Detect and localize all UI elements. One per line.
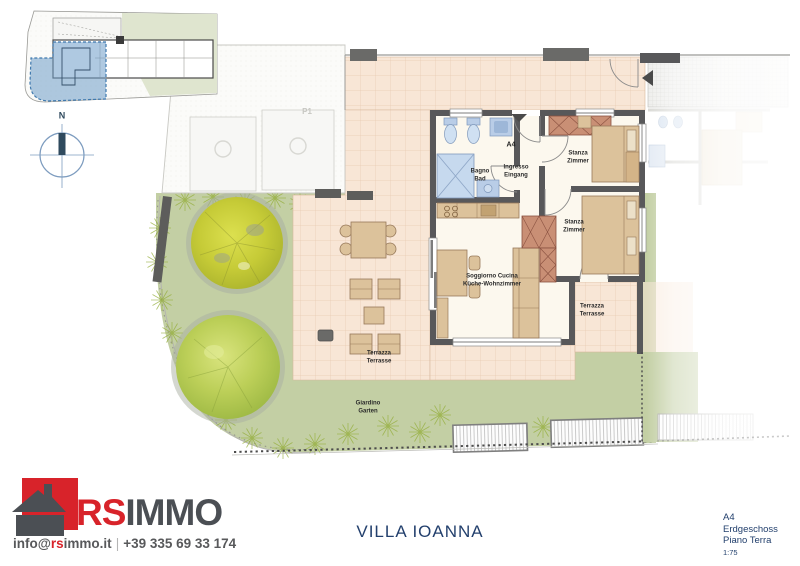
plan-info-scale: 1:75 <box>723 547 778 559</box>
unit-label: A4 <box>507 142 516 151</box>
contact-line: info@rsimmo.it|+39 335 69 33 174 <box>13 536 236 551</box>
logo-immo: IMMO <box>125 492 222 533</box>
plan-info-floor-de: Erdgeschoss <box>723 524 778 536</box>
floor-plan-canvas: N P1 Bagno Bad A4 Ingresso Eingang Stanz… <box>0 0 800 470</box>
plan-info-block: A4 Erdgeschoss Piano Terra 1:75 <box>723 512 778 558</box>
room-label-living: Soggiorno Cucina Küche-Wohnzimmer <box>463 274 521 289</box>
bed-bedroom2 <box>582 196 639 274</box>
fade-overlay <box>646 45 800 460</box>
plan-info-floor-it: Piano Terra <box>723 535 778 547</box>
shower-icon <box>437 154 474 198</box>
page: N P1 Bagno Bad A4 Ingresso Eingang Stanz… <box>0 0 800 566</box>
email-highlight[interactable]: rs <box>51 536 64 551</box>
phone-number[interactable]: +39 335 69 33 174 <box>123 536 236 551</box>
kitchen-counter <box>437 203 519 218</box>
compass-icon <box>30 124 94 188</box>
floor-plan-drawing <box>0 0 800 470</box>
contact-separator: | <box>112 536 124 551</box>
kitchen-sink-icon <box>481 205 496 216</box>
email-suffix[interactable]: immo.it <box>64 536 112 551</box>
room-label-bedroom1: Stanza Zimmer <box>567 151 589 166</box>
sink-icon <box>490 118 512 136</box>
site-plan-map <box>25 11 217 102</box>
toilet-icon <box>444 118 457 144</box>
tree-icon-top <box>186 192 288 294</box>
room-label-bathroom: Bagno Bad <box>471 169 490 184</box>
tree-icon-bottom <box>171 310 285 424</box>
sofa <box>513 248 539 338</box>
email-prefix[interactable]: info@ <box>13 536 51 551</box>
grill-icon <box>318 330 333 341</box>
sideboard <box>437 298 448 338</box>
room-label-entrance: Ingresso Eingang <box>503 165 528 180</box>
plan-info-unit: A4 <box>723 512 778 524</box>
parking-label: P1 <box>302 107 312 117</box>
project-title: VILLA IOANNA <box>356 522 483 542</box>
footer: RSIMMO info@rsimmo.it|+39 335 69 33 174 … <box>0 470 800 566</box>
label-terrace-main: Terrazza Terrasse <box>367 351 392 366</box>
cabinet <box>626 152 639 182</box>
bidet-icon <box>467 118 480 144</box>
rsimmo-logo-icon <box>12 478 78 540</box>
logo-rs: RS <box>76 492 125 533</box>
label-garden: Giardino Garten <box>356 401 381 416</box>
logo-wordmark: RSIMMO <box>76 494 222 531</box>
compass-north-label: N <box>59 110 66 121</box>
label-terrace-right: Terrazza Terrasse <box>580 304 605 319</box>
room-label-bedroom2: Stanza Zimmer <box>563 220 585 235</box>
